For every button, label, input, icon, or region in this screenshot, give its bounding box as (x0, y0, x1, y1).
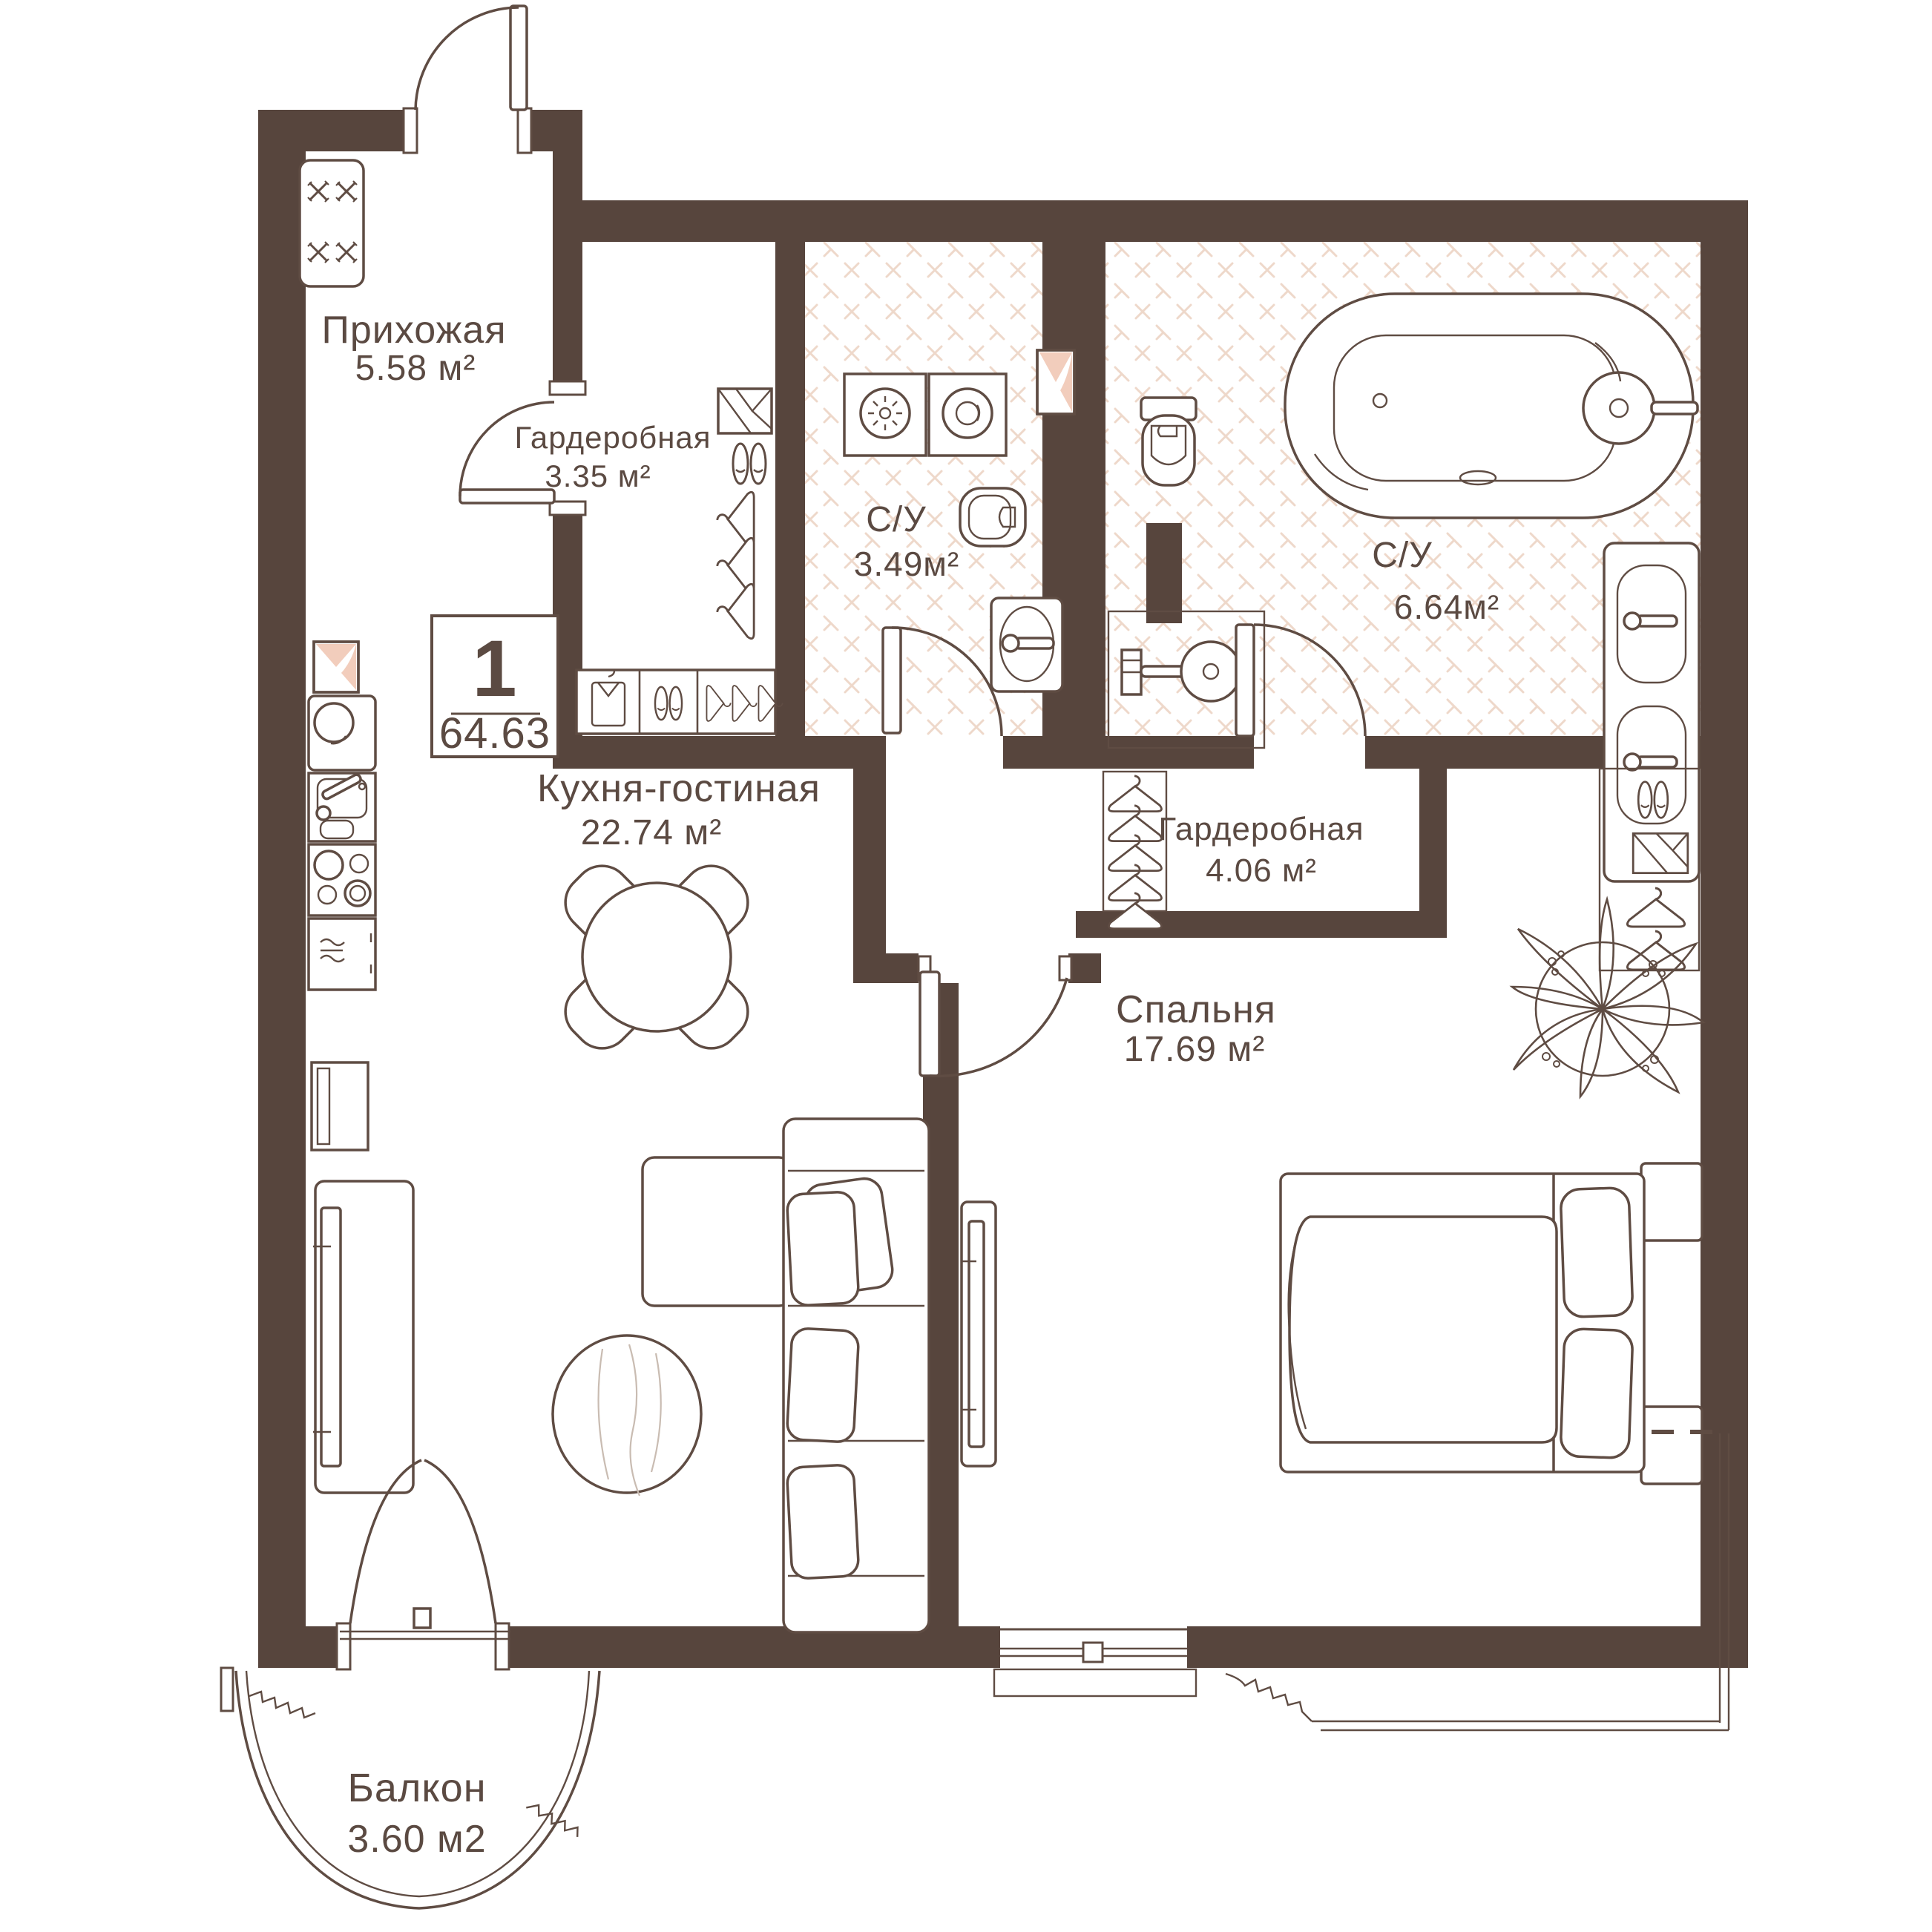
cooktop-icon (309, 844, 375, 916)
hanger-icon (717, 584, 754, 638)
balcony: Балкон 3.60 м2 (221, 1668, 599, 1908)
bathroom-small-area: 3.49м² (854, 545, 959, 583)
bedroom-label: Спальня (1116, 988, 1276, 1031)
badge-total-area: 64.63 (439, 709, 551, 758)
rug (553, 1335, 701, 1496)
room-hallway: Прихожая 5.58 м² (300, 160, 506, 388)
closet-row (576, 670, 783, 734)
vent-shaft-kitchen (314, 642, 358, 692)
wardrobe-big-area: 4.06 м² (1206, 852, 1317, 889)
floor-plan: Прихожая 5.58 м² 1 64.63 (0, 0, 1932, 1932)
pillow (786, 1328, 859, 1443)
bathroom-small-label: С/У (866, 500, 927, 539)
wardrobe-small-door (460, 490, 554, 503)
shoe-cabinet (300, 160, 364, 286)
bedroom-area: 17.69 м² (1124, 1030, 1265, 1069)
room-wardrobe-big: Гардеробная 4.06 м² (1103, 772, 1364, 929)
pillow (1560, 1328, 1633, 1458)
room-kitchen-living: Кухня-гостиная 22.74 м² (309, 696, 929, 1632)
sink-icon (991, 598, 1062, 691)
pillow (786, 1465, 859, 1580)
badge-rooms-count: 1 (472, 623, 517, 713)
oven-icon (309, 919, 375, 990)
kitchen-living-area: 22.74 м² (581, 813, 722, 852)
tv-console (313, 1181, 413, 1493)
bedroom-window (994, 1629, 1196, 1696)
sofa (643, 1119, 929, 1632)
shoes-icon (733, 444, 766, 484)
dryer-icon (929, 374, 1006, 456)
bedroom-tv (962, 1202, 996, 1466)
wardrobe-small-label: Гардеробная (514, 420, 711, 455)
storage-box-icon (718, 389, 772, 433)
hallway-area: 5.58 м² (355, 349, 476, 388)
fridge-icon (309, 696, 375, 770)
wardrobe-big-label: Гардеробная (1158, 811, 1364, 847)
entry-door (404, 6, 531, 153)
pillow (1560, 1187, 1633, 1317)
bed (1281, 1174, 1644, 1472)
hanger-icon (1627, 888, 1684, 927)
bathroom-big-label: С/У (1372, 536, 1433, 575)
double-sink-vanity (1604, 543, 1699, 881)
balcony-area: 3.60 м2 (347, 1818, 486, 1861)
storage-box-icon (1633, 833, 1688, 873)
washer-icon (844, 374, 926, 456)
kitchen-sink-icon (309, 773, 375, 841)
bathtub-icon (1285, 294, 1698, 518)
tall-cabinet (312, 1062, 368, 1150)
toilet-icon (1141, 398, 1196, 485)
nightstand (1641, 1407, 1702, 1484)
bathroom-big-area: 6.64м² (1394, 588, 1499, 626)
tv-icon (969, 1221, 984, 1447)
balcony-label: Балкон (347, 1766, 486, 1810)
kitchen-living-label: Кухня-гостиная (537, 767, 821, 810)
room-bedroom: Спальня 17.69 м² (962, 899, 1703, 1484)
hallway-label: Прихожая (322, 309, 507, 352)
wardrobe-small-area: 3.35 м² (545, 459, 651, 493)
hanger-rack (1103, 772, 1166, 929)
plan-badge: 1 64.63 (432, 616, 558, 758)
vent-shaft-bathrooms (1037, 350, 1074, 414)
dining-table (553, 854, 759, 1059)
nightstand (1641, 1163, 1702, 1241)
plant-icon (1512, 899, 1703, 1097)
pillow (786, 1192, 859, 1307)
toilet-icon (960, 488, 1025, 546)
